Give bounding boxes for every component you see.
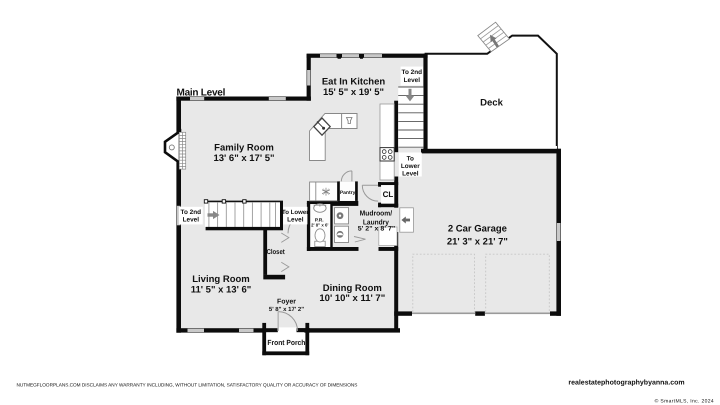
svg-text:To: To xyxy=(407,155,414,162)
svg-text:2' 8" x 6': 2' 8" x 6' xyxy=(311,223,328,228)
svg-text:Mudroom/: Mudroom/ xyxy=(360,209,393,218)
svg-text:10' 10" x 11' 7": 10' 10" x 11' 7" xyxy=(319,293,385,304)
svg-text:Level: Level xyxy=(404,77,421,84)
svg-text:21' 3" x 21' 7": 21' 3" x 21' 7" xyxy=(447,237,508,248)
svg-text:NUTMEGFLOORPLANS.COM DISCLAIMS: NUTMEGFLOORPLANS.COM DISCLAIMS ANY WARRA… xyxy=(17,382,358,387)
svg-text:Level: Level xyxy=(402,171,419,178)
svg-text:Main Level: Main Level xyxy=(177,87,226,98)
svg-text:Closet: Closet xyxy=(267,248,286,256)
svg-text:Level: Level xyxy=(183,217,200,224)
svg-text:To 2nd: To 2nd xyxy=(181,209,202,216)
svg-text:Pantry: Pantry xyxy=(340,190,356,196)
svg-text:Lower: Lower xyxy=(401,163,420,170)
svg-text:2 Car Garage: 2 Car Garage xyxy=(448,224,507,235)
svg-text:11' 5" x 13' 6": 11' 5" x 13' 6" xyxy=(191,284,252,295)
svg-text:Family Room: Family Room xyxy=(214,143,274,154)
svg-text:Foyer: Foyer xyxy=(277,299,296,306)
svg-text:To Lower: To Lower xyxy=(282,209,309,216)
svg-text:© SmartMLS, Inc. 2024: © SmartMLS, Inc. 2024 xyxy=(655,398,714,404)
svg-text:5' 2" x 8' 7": 5' 2" x 8' 7" xyxy=(358,226,396,233)
svg-text:13' 6" x 17' 5": 13' 6" x 17' 5" xyxy=(213,153,274,164)
svg-text:To 2nd: To 2nd xyxy=(402,69,423,76)
svg-text:Deck: Deck xyxy=(480,98,503,109)
svg-text:realestatephotographybyanna.co: realestatephotographybyanna.com xyxy=(568,379,684,387)
svg-text:CL: CL xyxy=(383,190,394,199)
svg-text:5' 8" x 17' 2": 5' 8" x 17' 2" xyxy=(269,306,304,313)
svg-text:Front Porch: Front Porch xyxy=(267,338,305,347)
svg-text:Eat In Kitchen: Eat In Kitchen xyxy=(322,76,386,87)
svg-text:Level: Level xyxy=(287,217,304,224)
svg-text:15' 5" x 19' 5": 15' 5" x 19' 5" xyxy=(323,87,384,98)
